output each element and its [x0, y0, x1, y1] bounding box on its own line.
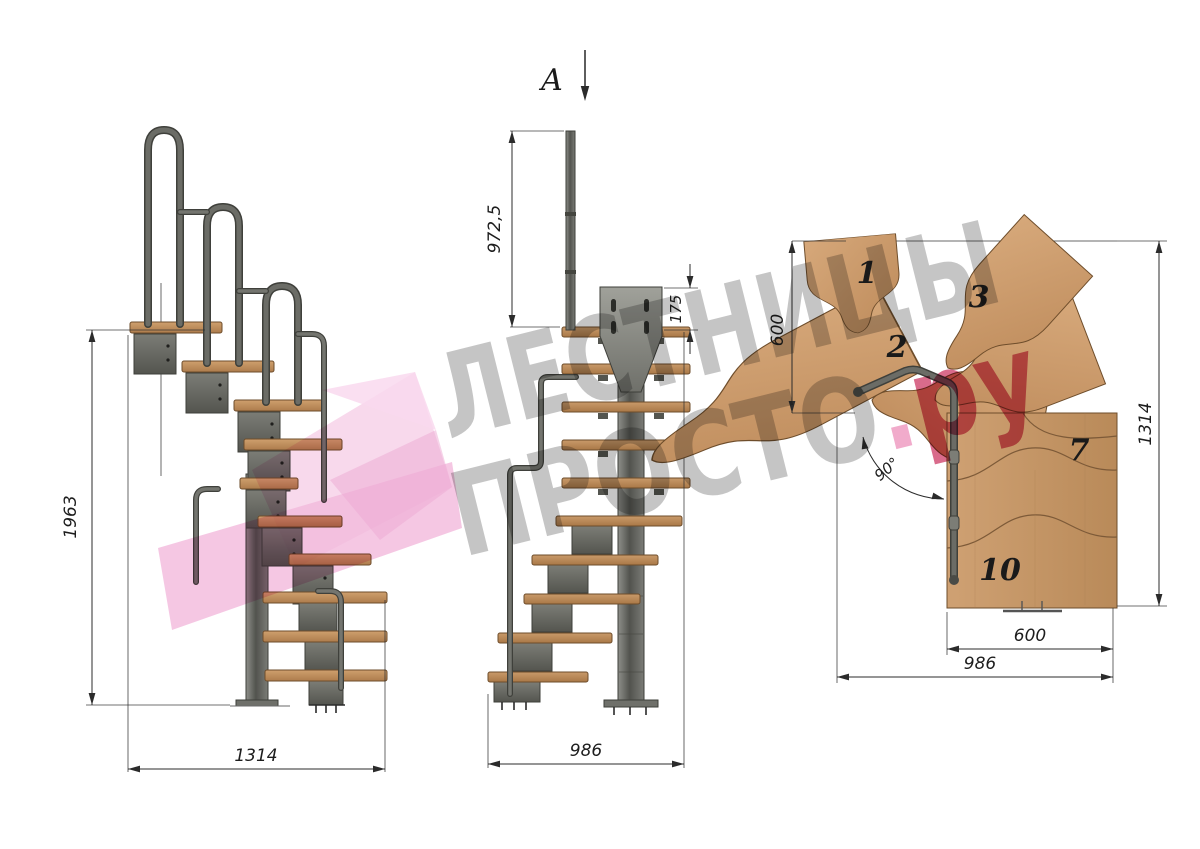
staircase-drawing: 1963 1314 A: [0, 0, 1200, 849]
dim-post-height-label: 972,5: [485, 205, 505, 254]
dim-total-width-label: 986: [964, 654, 997, 674]
technical-drawing-canvas: 1963 1314 A: [0, 0, 1200, 849]
step-number-10: 10: [979, 553, 1021, 588]
column-base-plate: [236, 700, 278, 706]
dim-step-width-label: 600: [1014, 626, 1046, 646]
section-marker-label: A: [538, 63, 563, 98]
dim-length-label: 1314: [234, 746, 277, 766]
dim-height-label: 1963: [61, 495, 81, 538]
dim-total-depth-label: 1314: [1136, 402, 1156, 445]
dim-front-length-label: 986: [570, 741, 603, 761]
anchor-bolts: [309, 705, 345, 713]
step-number-7: 7: [1069, 433, 1090, 468]
column-base: [604, 700, 658, 707]
